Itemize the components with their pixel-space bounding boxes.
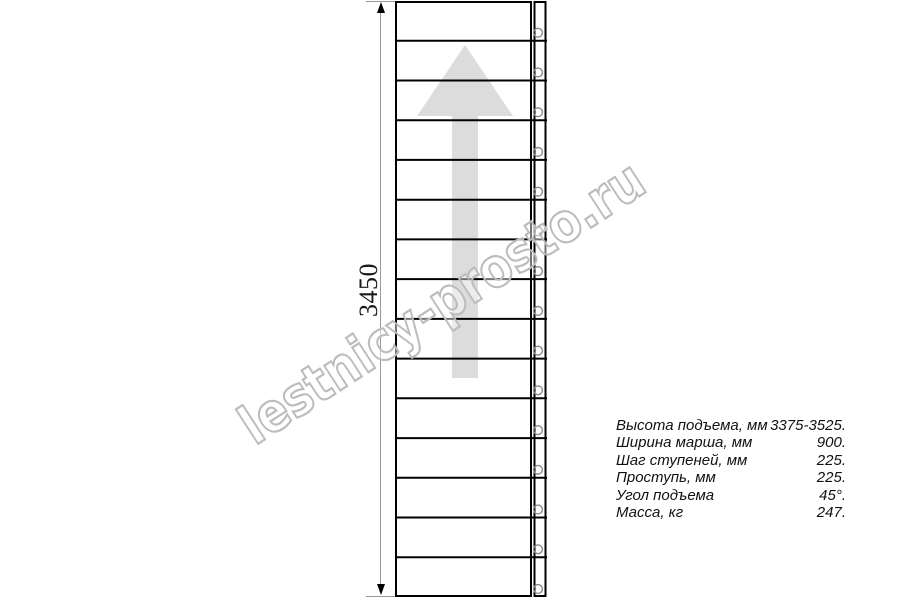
spec-value: 225.: [817, 452, 846, 469]
staircase-plan-graphic: [395, 1, 547, 597]
spec-value: 3375-3525.: [770, 417, 846, 434]
spec-row-angle: Угол подъема 45°.: [616, 487, 846, 504]
staircase-plan: [395, 1, 547, 597]
dimension-arrowhead-bottom-icon: [377, 584, 385, 595]
spec-row-mass: Масса, кг 247.: [616, 504, 846, 521]
spec-row-tread: Проступь, мм 225.: [616, 469, 846, 486]
spec-label: Угол подъема: [616, 487, 714, 504]
spec-label: Шаг ступеней, мм: [616, 452, 747, 469]
spec-value: 225.: [817, 469, 846, 486]
stringer-strip: [535, 2, 546, 596]
dimension-label: 3450: [354, 263, 384, 317]
spec-value: 45°.: [819, 487, 846, 504]
spec-label: Ширина марша, мм: [616, 434, 752, 451]
spec-value: 900.: [817, 434, 846, 451]
dimension-arrowhead-top-icon: [377, 2, 385, 13]
spec-label: Высота подъема, мм: [616, 417, 768, 434]
spec-row-step: Шаг ступеней, мм 225.: [616, 452, 846, 469]
stair-drawing-canvas: 3450 Высота подъема, мм 3375-3525. Ширин…: [0, 0, 900, 600]
spec-value: 247.: [817, 504, 846, 521]
specifications-table: Высота подъема, мм 3375-3525. Ширина мар…: [616, 417, 846, 521]
spec-row-height: Высота подъема, мм 3375-3525.: [616, 417, 846, 434]
spec-label: Масса, кг: [616, 504, 683, 521]
extension-line-bottom: [366, 596, 395, 597]
spec-label: Проступь, мм: [616, 469, 716, 486]
spec-row-width: Ширина марша, мм 900.: [616, 434, 846, 451]
direction-up-arrow-icon: [417, 45, 513, 378]
